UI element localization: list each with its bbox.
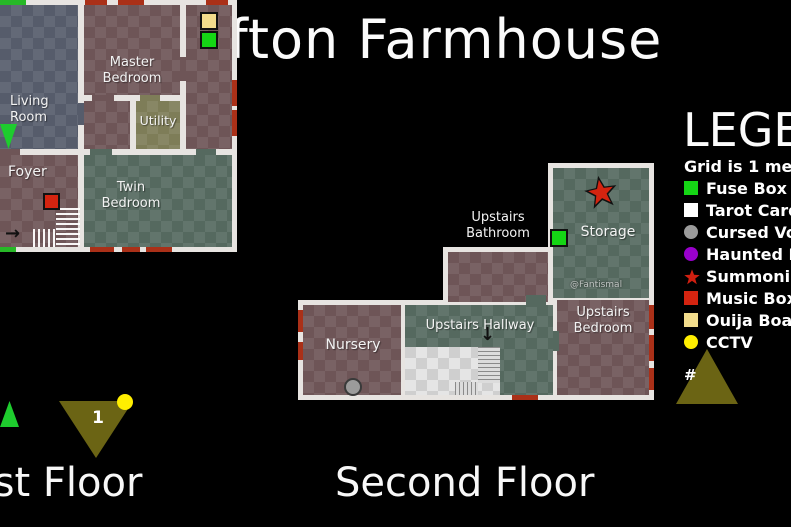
- window-dash: [85, 0, 107, 5]
- legend-row: Fuse Box: [684, 179, 791, 199]
- legend-row: Haunted Mirror: [684, 245, 791, 265]
- summoning-circle-icon: [684, 269, 700, 285]
- room-label-utility: Utility: [134, 113, 182, 129]
- window-dash: [649, 368, 654, 390]
- ouija-board-icon: [200, 12, 218, 30]
- room-label-hallway: Upstairs Hallway: [410, 318, 550, 334]
- window-dash: [512, 395, 538, 400]
- room-label-bedroom: Upstairs Bedroom: [557, 305, 649, 337]
- haunted-mirror-icon: [684, 247, 698, 261]
- fuse-box-icon: [200, 31, 218, 49]
- stairs-flight: [56, 208, 80, 248]
- window-dash: [118, 0, 144, 5]
- room-label-twin: Twin Bedroom: [91, 180, 171, 212]
- door-opening: [196, 149, 216, 155]
- legend-title: LEGEND: [683, 103, 791, 157]
- cctv-icon: [684, 335, 698, 349]
- legend-label: CCTV: [706, 333, 753, 352]
- room-label-bathroom: Upstairs Bathroom: [452, 210, 544, 242]
- legend-row: CCTV: [684, 333, 791, 353]
- room-label-living: Living Room: [10, 94, 80, 126]
- legend-row: Summoning Circle: [684, 267, 791, 287]
- window-dash: [90, 247, 114, 252]
- door-opening: [180, 57, 186, 81]
- legend-row: Tarot Cards: [684, 201, 791, 221]
- room-hall-strip: [84, 101, 130, 149]
- window-dash: [298, 310, 303, 332]
- legend-label: Fuse Box: [706, 179, 787, 198]
- first-floor-plan: → Living Room Master Bedroom Utility Foy…: [0, 0, 237, 252]
- legend-row: Ouija Board: [684, 311, 791, 331]
- legend-label: Summoning Circle: [706, 267, 791, 286]
- window-dash: [206, 0, 228, 5]
- window-dash: [122, 247, 140, 252]
- cctv-icon: [117, 394, 133, 410]
- map-screenshot: Grafton Farmhouse: [0, 0, 791, 527]
- entry-door-dash: [0, 247, 16, 252]
- door-opening: [0, 149, 20, 155]
- legend-row: Cursed Voodoo: [684, 223, 791, 243]
- window-dash: [146, 247, 172, 252]
- cursed-voodoo-icon: [684, 225, 698, 239]
- door-opening: [526, 295, 546, 307]
- entry-marker-triangle-icon: [0, 401, 19, 427]
- music-box-icon: [684, 291, 698, 305]
- tarot-cards-icon: [684, 203, 698, 217]
- second-floor-plan: ↓ Nursery Upstairs Hallway Upstairs Bedr…: [298, 163, 658, 403]
- window-dash: [298, 342, 303, 360]
- legend-grid-note: Grid is 1 meter: [684, 157, 791, 176]
- legend-label: Cursed Voodoo: [706, 223, 791, 242]
- cursed-voodoo-icon: [344, 378, 362, 396]
- room-label-storage: Storage: [564, 224, 652, 240]
- legend-label: Music Box: [706, 289, 791, 308]
- fuse-box-icon: [684, 181, 698, 195]
- room-label-master: Master Bedroom: [86, 55, 178, 87]
- legend-label: Haunted Mirror: [706, 245, 791, 264]
- stairs-direction-arrow-icon: →: [5, 228, 20, 240]
- stairs-flight: [478, 347, 500, 383]
- legend-row: Music Box: [684, 289, 791, 309]
- ouija-board-icon: [684, 313, 698, 327]
- window-dash: [232, 110, 237, 136]
- stairs-flight: [33, 229, 56, 247]
- room-label-nursery: Nursery: [310, 337, 396, 353]
- wall: [0, 247, 237, 252]
- window-dash: [649, 305, 654, 329]
- room-label-foyer: Foyer: [8, 164, 68, 180]
- legend-label: Ouija Board: [706, 311, 791, 330]
- entry-door-dash: [0, 0, 26, 5]
- window-dash: [649, 335, 654, 361]
- door-opening: [90, 149, 112, 155]
- music-box-icon: [43, 193, 60, 210]
- door-opening: [140, 95, 160, 101]
- window-dash: [232, 80, 237, 106]
- legend-label: Tarot Cards: [706, 201, 791, 220]
- stair-link-number: 1: [88, 408, 108, 428]
- first-floor-title: First Floor: [0, 460, 142, 506]
- watermark: @Fantismal: [570, 280, 622, 290]
- door-opening: [92, 95, 114, 101]
- stair-link-number: #: [684, 366, 704, 384]
- second-floor-title: Second Floor: [335, 460, 594, 506]
- stairs-flight: [455, 382, 478, 395]
